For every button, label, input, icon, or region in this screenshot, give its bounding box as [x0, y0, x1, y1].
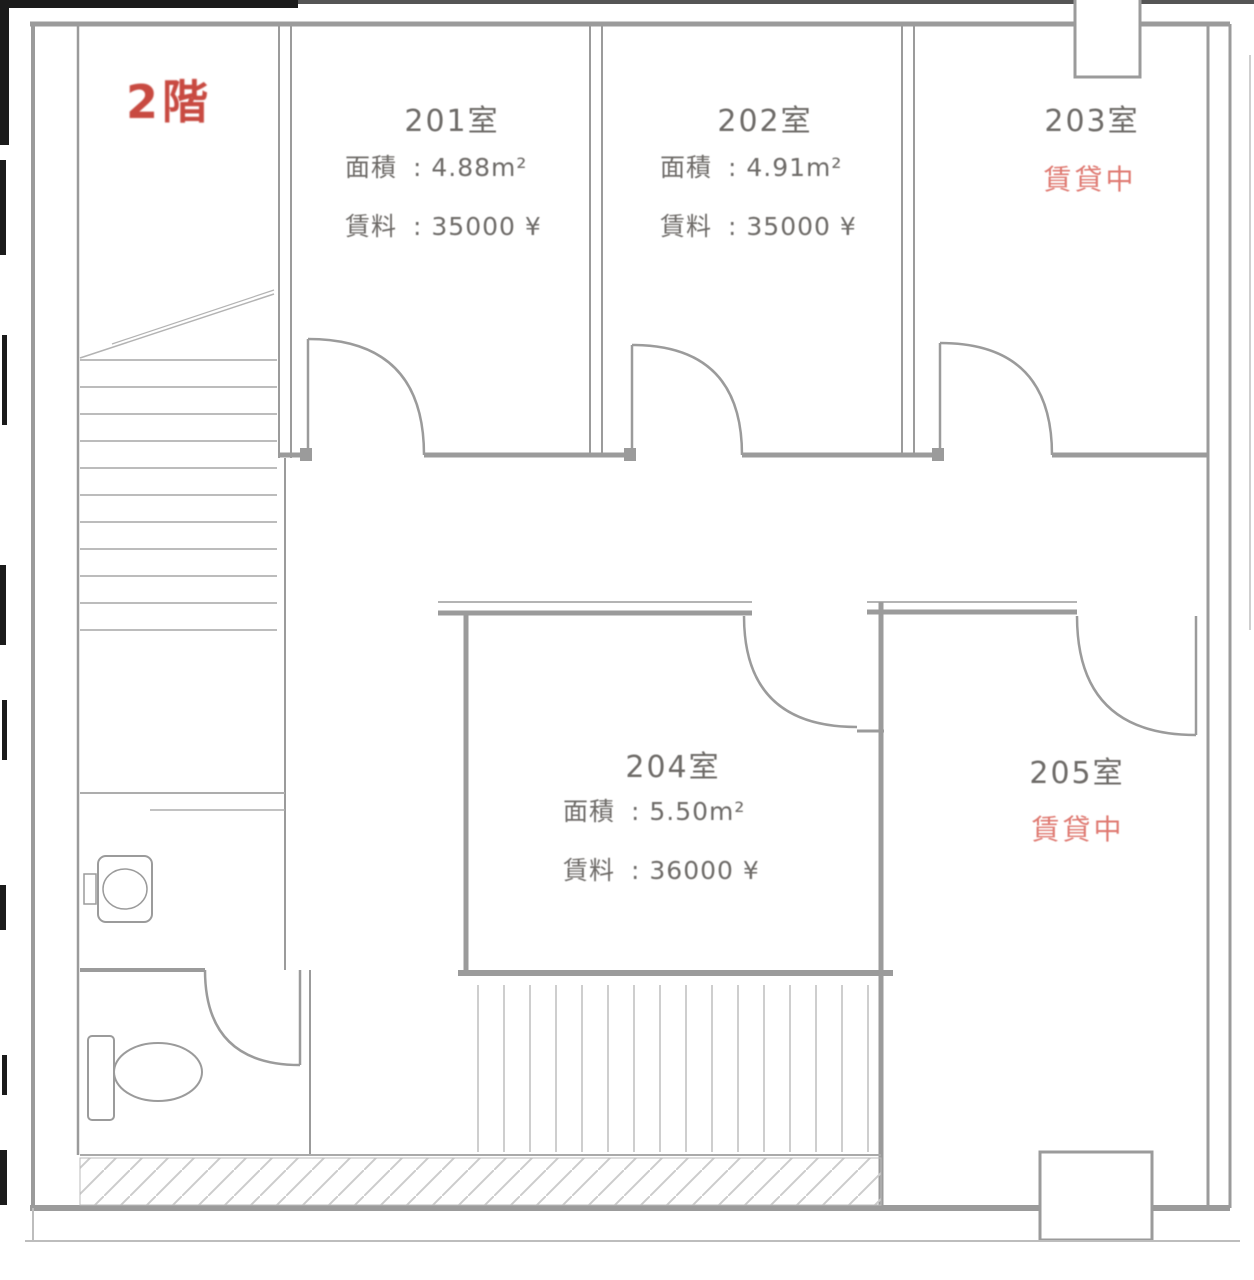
sink-fixture [84, 856, 152, 922]
door-room-205 [1077, 616, 1196, 735]
room-202-label: 202室 [717, 96, 812, 140]
bottom-shaft-notch [1040, 1152, 1152, 1240]
room-204-details: 面積 : 5.50m² 賃料 : 36000 ¥ [563, 792, 760, 887]
balcony-hatch [80, 1155, 881, 1205]
area-label: 面積 [660, 148, 712, 184]
floor-plan-page: 2階 201室 面積 : 4.88m² 賃料 : 35000 ¥ 202室 面積… [0, 0, 1254, 1280]
staircase-upper [80, 290, 277, 630]
area-label: 面積 [345, 148, 397, 184]
rent-value: : 36000 ¥ [631, 856, 760, 885]
door-toilet [205, 970, 300, 1065]
door-room-201 [308, 339, 424, 455]
room-202-rent-row: 賃料 : 35000 ¥ [660, 207, 857, 243]
room-202-area-row: 面積 : 4.91m² [660, 148, 857, 184]
room-201-details: 面積 : 4.88m² 賃料 : 35000 ¥ [345, 148, 542, 243]
area-value: : 4.91m² [728, 153, 842, 182]
room-202-details: 面積 : 4.91m² 賃料 : 35000 ¥ [660, 148, 857, 243]
room-201-area-row: 面積 : 4.88m² [345, 148, 542, 184]
room-204-area-row: 面積 : 5.50m² [563, 792, 760, 828]
rent-label: 賃料 [563, 851, 615, 887]
counter-lines [80, 793, 285, 970]
corridor-wall [279, 448, 1208, 461]
room-205-label: 205室 [1029, 748, 1124, 792]
top-shaft-notch [1075, 0, 1140, 77]
rent-value: : 35000 ¥ [413, 212, 542, 241]
area-value: : 5.50m² [631, 797, 745, 826]
rent-label: 賃料 [345, 207, 397, 243]
room-204-label: 204室 [625, 742, 720, 786]
room-203-status: 賃貸中 [1043, 158, 1136, 198]
room-204-rent-row: 賃料 : 36000 ¥ [563, 851, 760, 887]
room-205-status: 賃貸中 [1031, 808, 1124, 848]
area-label: 面積 [563, 792, 615, 828]
page-edge-lines [25, 55, 1250, 1241]
area-value: : 4.88m² [413, 153, 527, 182]
room-203-label: 203室 [1044, 96, 1139, 140]
door-room-202 [632, 345, 742, 455]
toilet-fixture [88, 1036, 202, 1120]
rent-value: : 35000 ¥ [728, 212, 857, 241]
door-room-203 [940, 343, 1052, 455]
room-201-rent-row: 賃料 : 35000 ¥ [345, 207, 542, 243]
door-room-204 [744, 616, 857, 727]
room-201-label: 201室 [404, 96, 499, 140]
floor-label: 2階 [126, 66, 212, 132]
rent-label: 賃料 [660, 207, 712, 243]
staircase-lower [478, 985, 868, 1152]
middle-room-walls [438, 602, 1077, 1208]
